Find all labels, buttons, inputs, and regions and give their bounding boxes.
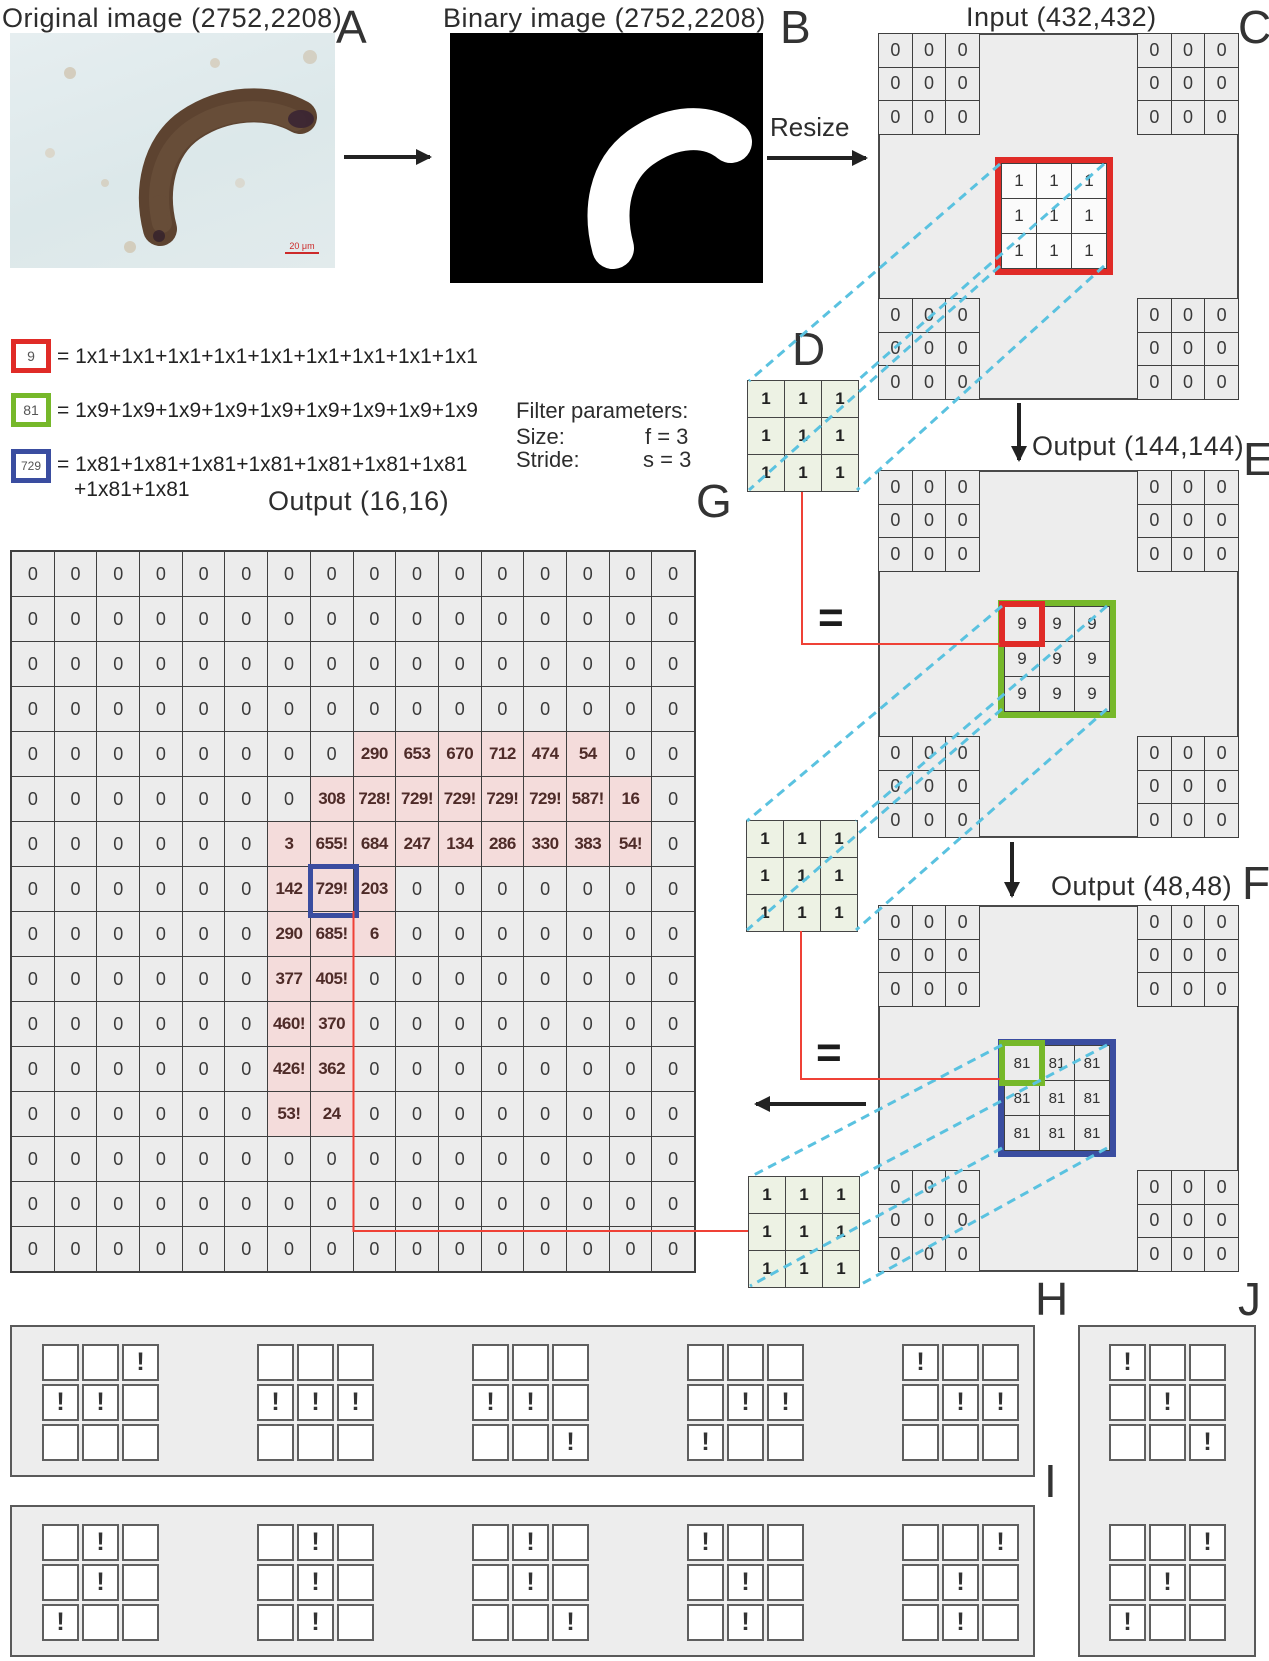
output-grid-cell: 0 bbox=[183, 597, 225, 641]
grid-cell: 0 bbox=[913, 538, 946, 571]
output-grid-cell: 0 bbox=[652, 957, 694, 1001]
output-grid-cell: 0 bbox=[97, 777, 139, 821]
panel-i-label: I bbox=[1044, 1458, 1057, 1504]
grid-cell: 1 bbox=[822, 455, 858, 491]
grid-cell: 0 bbox=[879, 333, 912, 366]
grid-cell: 0 bbox=[913, 101, 946, 134]
grid-cell: 1 bbox=[1037, 234, 1071, 268]
output-grid-cell: 405! bbox=[311, 957, 353, 1001]
grid-cell: 81 bbox=[1040, 1046, 1074, 1080]
pattern-cell bbox=[42, 1524, 79, 1561]
pattern-cell bbox=[767, 1344, 804, 1381]
zero-block: 000000000 bbox=[878, 33, 980, 135]
output-grid-cell: 0 bbox=[567, 867, 609, 911]
grid-cell: 81 bbox=[1075, 1046, 1109, 1080]
output-grid-cell: 134 bbox=[439, 822, 481, 866]
pattern-cell bbox=[297, 1424, 334, 1461]
output-grid-cell: 0 bbox=[225, 822, 267, 866]
pattern-cell: ! bbox=[82, 1564, 119, 1601]
output-grid-cell: 377 bbox=[268, 957, 310, 1001]
output-grid-cell: 0 bbox=[396, 687, 438, 731]
output-grid-cell: 653 bbox=[396, 732, 438, 776]
output-grid-cell: 0 bbox=[652, 822, 694, 866]
grid-cell: 0 bbox=[879, 366, 912, 399]
equals-sign-e: = bbox=[818, 596, 844, 640]
output-grid-cell: 0 bbox=[311, 552, 353, 596]
output-grid-cell: 0 bbox=[97, 1227, 139, 1271]
grid-cell: 0 bbox=[1172, 299, 1205, 332]
output-grid-cell: 0 bbox=[12, 687, 54, 731]
output-grid-cell: 0 bbox=[225, 1092, 267, 1136]
output-grid-cell: 0 bbox=[567, 1137, 609, 1181]
pattern-cell: ! bbox=[297, 1604, 334, 1641]
grid-cell: 0 bbox=[946, 804, 979, 837]
pattern-cell bbox=[982, 1564, 1019, 1601]
grid-cell: 0 bbox=[1172, 333, 1205, 366]
output-grid-cell: 0 bbox=[524, 687, 566, 731]
output-grid-cell: 0 bbox=[12, 1002, 54, 1046]
output-grid-cell: 0 bbox=[12, 597, 54, 641]
output-grid-cell: 0 bbox=[439, 1137, 481, 1181]
grid-cell: 0 bbox=[913, 1171, 946, 1204]
grid-cell: 0 bbox=[946, 973, 979, 1006]
output-grid-cell: 0 bbox=[567, 1182, 609, 1226]
grid-cell: 0 bbox=[1205, 68, 1238, 101]
grid-cell: 0 bbox=[1172, 804, 1205, 837]
grid-cell: 81 bbox=[1040, 1116, 1074, 1150]
grid-cell: 0 bbox=[946, 538, 979, 571]
grid-cell: 9 bbox=[1075, 642, 1109, 676]
grid-cell: 0 bbox=[1172, 366, 1205, 399]
output-grid-cell: 0 bbox=[225, 777, 267, 821]
grid-cell: 0 bbox=[946, 471, 979, 504]
output-grid-cell: 0 bbox=[652, 687, 694, 731]
pattern-cell: ! bbox=[982, 1384, 1019, 1421]
grid-cell: 0 bbox=[879, 34, 912, 67]
grid-cell: 0 bbox=[1172, 101, 1205, 134]
grid-cell: 1 bbox=[785, 381, 821, 417]
legend-box-729: 729 bbox=[11, 449, 51, 483]
output-grid-cell: 0 bbox=[55, 777, 97, 821]
output-grid-cell: 0 bbox=[140, 597, 182, 641]
output-grid-cell: 0 bbox=[610, 732, 652, 776]
filter-pattern-grid: !!! bbox=[902, 1344, 1019, 1461]
output-grid-cell: 24 bbox=[311, 1092, 353, 1136]
output-grid-cell: 0 bbox=[97, 552, 139, 596]
grid-cell: 0 bbox=[1138, 906, 1171, 939]
output-grid-cell: 142 bbox=[268, 867, 310, 911]
grid-cell: 0 bbox=[879, 804, 912, 837]
output-grid-cell: 247 bbox=[396, 822, 438, 866]
output-grid-cell: 0 bbox=[567, 957, 609, 1001]
grid-cell: 0 bbox=[1138, 333, 1171, 366]
filter-pattern-grid: !!! bbox=[902, 1524, 1019, 1641]
output-grid-cell: 0 bbox=[55, 957, 97, 1001]
filter-pattern-grid: !!! bbox=[1109, 1344, 1226, 1461]
resize-label: Resize bbox=[770, 112, 849, 143]
grid-cell: 0 bbox=[946, 68, 979, 101]
output-grid-cell: 0 bbox=[652, 1227, 694, 1271]
pattern-cell bbox=[1109, 1424, 1146, 1461]
output-grid-cell: 0 bbox=[225, 642, 267, 686]
panel-f-title: Output (48,48) bbox=[1051, 871, 1232, 902]
output-grid-cell: 0 bbox=[225, 552, 267, 596]
output-grid-cell: 0 bbox=[524, 1002, 566, 1046]
pattern-cell bbox=[942, 1344, 979, 1381]
panel-c-title: Input (432,432) bbox=[966, 2, 1157, 33]
output-grid-cell: 0 bbox=[652, 1137, 694, 1181]
output-grid-cell: 0 bbox=[524, 552, 566, 596]
output-grid-cell: 0 bbox=[482, 1137, 524, 1181]
pattern-cell bbox=[122, 1424, 159, 1461]
pattern-cell: ! bbox=[687, 1524, 724, 1561]
binary-image bbox=[450, 33, 763, 283]
zero-block: 000000000 bbox=[878, 905, 980, 1007]
output-grid-cell: 0 bbox=[311, 687, 353, 731]
grid-cell: 0 bbox=[879, 471, 912, 504]
output-grid-cell: 685! bbox=[311, 912, 353, 956]
grid-cell: 0 bbox=[1138, 68, 1171, 101]
grid-cell: 1 bbox=[1037, 164, 1071, 198]
output-grid-cell: 0 bbox=[97, 1182, 139, 1226]
grid-cell: 0 bbox=[1138, 505, 1171, 538]
output-grid-cell: 0 bbox=[439, 597, 481, 641]
output-grid-cell: 0 bbox=[55, 732, 97, 776]
grid-cell: 0 bbox=[946, 771, 979, 804]
output-grid-cell: 0 bbox=[567, 1047, 609, 1091]
pattern-cell: ! bbox=[1149, 1384, 1186, 1421]
grid-cell: 1 bbox=[786, 1177, 822, 1213]
grid-cell: 0 bbox=[1138, 366, 1171, 399]
output-grid-cell: 0 bbox=[396, 1047, 438, 1091]
output-grid-cell: 0 bbox=[524, 1227, 566, 1271]
output-grid-cell: 0 bbox=[97, 1137, 139, 1181]
grid-cell: 1 bbox=[784, 858, 820, 894]
pattern-cell: ! bbox=[82, 1384, 119, 1421]
output-grid-cell: 0 bbox=[439, 1047, 481, 1091]
legend-equation-729-line2: +1x81+1x81 bbox=[74, 478, 190, 502]
output-grid-cell: 0 bbox=[183, 1092, 225, 1136]
grid-cell: 0 bbox=[913, 973, 946, 1006]
pattern-cell: ! bbox=[1189, 1424, 1226, 1461]
grid-cell: 0 bbox=[913, 804, 946, 837]
grid-cell: 0 bbox=[913, 771, 946, 804]
output-grid-cell: 729! bbox=[524, 777, 566, 821]
output-grid-cell: 0 bbox=[55, 1047, 97, 1091]
pattern-cell bbox=[257, 1604, 294, 1641]
output-grid-cell: 54! bbox=[610, 822, 652, 866]
output-grid-cell: 0 bbox=[610, 957, 652, 1001]
output-grid-cell: 0 bbox=[12, 1227, 54, 1271]
output-grid-cell: 0 bbox=[183, 957, 225, 1001]
output-grid-cell: 0 bbox=[140, 1002, 182, 1046]
grid-cell: 0 bbox=[1205, 940, 1238, 973]
pattern-cell bbox=[337, 1564, 374, 1601]
output-grid-cell: 0 bbox=[610, 642, 652, 686]
pattern-cell: ! bbox=[1109, 1344, 1146, 1381]
output-grid-cell: 0 bbox=[183, 732, 225, 776]
output-grid-cell: 0 bbox=[12, 777, 54, 821]
grid-cell: 0 bbox=[1205, 101, 1238, 134]
pattern-cell: ! bbox=[82, 1524, 119, 1561]
grid-cell: 9 bbox=[1040, 642, 1074, 676]
output-grid-cell: 0 bbox=[268, 687, 310, 731]
grid-cell: 0 bbox=[1205, 538, 1238, 571]
output-grid-cell: 0 bbox=[97, 957, 139, 1001]
filter-pattern-grid: !!! bbox=[472, 1524, 589, 1641]
output-grid-cell: 0 bbox=[610, 1002, 652, 1046]
pattern-cell bbox=[122, 1604, 159, 1641]
output-grid-cell: 0 bbox=[652, 912, 694, 956]
panel-e-label: E bbox=[1243, 436, 1269, 482]
output-grid-cell: 0 bbox=[140, 867, 182, 911]
output-grid-cell: 0 bbox=[652, 867, 694, 911]
grid-cell: 0 bbox=[1138, 737, 1171, 770]
output-grid-cell: 0 bbox=[97, 597, 139, 641]
output-grid-cell: 0 bbox=[610, 1092, 652, 1136]
output-grid-cell: 0 bbox=[97, 1047, 139, 1091]
output-grid-cell: 729! bbox=[396, 777, 438, 821]
zero-block: 000000000 bbox=[878, 298, 980, 400]
grid-cell: 0 bbox=[1138, 973, 1171, 1006]
output-grid-cell: 203 bbox=[354, 867, 396, 911]
scale-bar: 20 μm bbox=[285, 242, 319, 254]
panel-g-label: G bbox=[696, 478, 732, 524]
output-grid-cell: 0 bbox=[610, 1227, 652, 1271]
filter-grid-d: 111111111 bbox=[747, 380, 859, 492]
output-grid-cell: 0 bbox=[567, 642, 609, 686]
grid-cell: 0 bbox=[1172, 505, 1205, 538]
zero-block: 000000000 bbox=[1137, 736, 1239, 838]
output-grid-cell: 0 bbox=[225, 1227, 267, 1271]
pattern-cell bbox=[982, 1424, 1019, 1461]
grid-cell: 1 bbox=[821, 821, 857, 857]
grid-cell: 0 bbox=[1138, 1205, 1171, 1238]
pattern-cell bbox=[472, 1424, 509, 1461]
output-grid-cell: 0 bbox=[439, 642, 481, 686]
filter-pattern-grid: !!! bbox=[257, 1524, 374, 1641]
output-grid-cell: 0 bbox=[140, 1092, 182, 1136]
output-grid-cell: 460! bbox=[268, 1002, 310, 1046]
output-grid-cell: 587! bbox=[567, 777, 609, 821]
output-grid-cell: 0 bbox=[610, 1182, 652, 1226]
output-grid-cell: 0 bbox=[354, 1047, 396, 1091]
grid-cell: 0 bbox=[913, 1238, 946, 1271]
output-grid-cell: 0 bbox=[12, 1092, 54, 1136]
pattern-cell: ! bbox=[257, 1384, 294, 1421]
grid-cell: 0 bbox=[879, 299, 912, 332]
panel-j-label: J bbox=[1238, 1276, 1261, 1322]
grid-cell: 0 bbox=[1172, 471, 1205, 504]
grid-cell: 1 bbox=[823, 1177, 859, 1213]
grid-cell: 0 bbox=[946, 1238, 979, 1271]
zero-block: 000000000 bbox=[1137, 905, 1239, 1007]
pattern-cell bbox=[902, 1424, 939, 1461]
grid-cell: 0 bbox=[913, 906, 946, 939]
grid-cell: 81 bbox=[1040, 1081, 1074, 1115]
grid-cell: 0 bbox=[879, 1238, 912, 1271]
grid-cell: 0 bbox=[879, 940, 912, 973]
pattern-cell bbox=[1109, 1564, 1146, 1601]
filter-d-label: D bbox=[792, 326, 825, 372]
grid-cell: 0 bbox=[879, 737, 912, 770]
panel-b-label: B bbox=[780, 4, 811, 50]
output-grid-cell: 0 bbox=[140, 1137, 182, 1181]
pattern-cell bbox=[552, 1524, 589, 1561]
output-grid-cell: 0 bbox=[439, 957, 481, 1001]
grid-cell: 1 bbox=[1037, 199, 1071, 233]
output-grid-cell: 0 bbox=[354, 552, 396, 596]
output-grid-cell: 0 bbox=[610, 1047, 652, 1091]
output-grid-cell: 0 bbox=[354, 1182, 396, 1226]
pattern-cell bbox=[42, 1424, 79, 1461]
microscopy-specimen-drawing bbox=[10, 33, 335, 268]
grid-cell: 0 bbox=[946, 1205, 979, 1238]
grid-cell: 0 bbox=[946, 505, 979, 538]
grid-cell: 0 bbox=[913, 471, 946, 504]
output-grid-cell: 0 bbox=[567, 1227, 609, 1271]
grid-cell: 0 bbox=[879, 1171, 912, 1204]
panel-g-title: Output (16,16) bbox=[268, 486, 449, 517]
output-grid-cell: 0 bbox=[524, 642, 566, 686]
pattern-cell: ! bbox=[512, 1564, 549, 1601]
output-grid-cell: 0 bbox=[12, 1047, 54, 1091]
zero-block: 000000000 bbox=[878, 470, 980, 572]
grid-cell: 9 bbox=[1005, 677, 1039, 711]
grid-cell: 1 bbox=[748, 455, 784, 491]
grid-cell: 1 bbox=[1002, 199, 1036, 233]
grid-cell: 0 bbox=[946, 299, 979, 332]
filter-grid-3: 111111111 bbox=[748, 1176, 860, 1288]
output-grid-cell: 0 bbox=[183, 912, 225, 956]
output-grid-cell: 0 bbox=[55, 1002, 97, 1046]
output-grid-cell: 0 bbox=[396, 1002, 438, 1046]
output-grid-cell: 290 bbox=[354, 732, 396, 776]
pattern-cell bbox=[42, 1344, 79, 1381]
output-grid-cell: 6 bbox=[354, 912, 396, 956]
output-grid-cell: 0 bbox=[311, 642, 353, 686]
output-grid-cell: 0 bbox=[567, 1002, 609, 1046]
grid-cell: 0 bbox=[1205, 771, 1238, 804]
output-grid-cell: 0 bbox=[183, 1002, 225, 1046]
pattern-cell bbox=[1189, 1344, 1226, 1381]
output-grid-cell: 0 bbox=[439, 687, 481, 731]
grid-cell: 0 bbox=[913, 737, 946, 770]
pattern-cell: ! bbox=[727, 1604, 764, 1641]
legend-equation-729: = 1x81+1x81+1x81+1x81+1x81+1x81+1x81 bbox=[57, 453, 467, 477]
output-grid-cell: 0 bbox=[140, 777, 182, 821]
output-grid-cell: 362 bbox=[311, 1047, 353, 1091]
output-grid-cell: 0 bbox=[140, 687, 182, 731]
output-grid-cell: 0 bbox=[225, 912, 267, 956]
output-48-panel: 000000000 000000000 000000000 000000000 … bbox=[878, 905, 1239, 1272]
output-grid-cell: 0 bbox=[225, 597, 267, 641]
pattern-cell bbox=[297, 1344, 334, 1381]
pattern-cell: ! bbox=[942, 1564, 979, 1601]
grid-cell: 1 bbox=[784, 821, 820, 857]
grid-cell: 0 bbox=[1138, 804, 1171, 837]
output-144-center-block: 999999999 bbox=[1004, 606, 1110, 712]
grid-cell: 0 bbox=[1172, 538, 1205, 571]
grid-cell: 1 bbox=[749, 1177, 785, 1213]
pattern-box-h: !!! !!! !!! !!! !!! bbox=[10, 1325, 1035, 1477]
output-grid-cell: 0 bbox=[225, 1182, 267, 1226]
output-grid-cell: 0 bbox=[396, 1182, 438, 1226]
grid-cell: 0 bbox=[1205, 737, 1238, 770]
grid-cell: 0 bbox=[1172, 1238, 1205, 1271]
output-grid-cell: 0 bbox=[97, 822, 139, 866]
pattern-cell: ! bbox=[942, 1604, 979, 1641]
output-grid-cell: 0 bbox=[482, 1002, 524, 1046]
output-grid-cell: 308 bbox=[311, 777, 353, 821]
pattern-cell bbox=[42, 1564, 79, 1601]
legend-box-9: 9 bbox=[11, 339, 51, 373]
output-grid-cell: 0 bbox=[268, 777, 310, 821]
output-grid-cell: 0 bbox=[524, 867, 566, 911]
output-grid-cell: 0 bbox=[97, 687, 139, 731]
output-grid-cell: 0 bbox=[610, 867, 652, 911]
output-grid-cell: 0 bbox=[140, 912, 182, 956]
pattern-cell bbox=[767, 1524, 804, 1561]
pattern-cell: ! bbox=[472, 1384, 509, 1421]
grid-cell: 1 bbox=[784, 895, 820, 931]
grid-cell: 9 bbox=[1040, 677, 1074, 711]
grid-cell: 0 bbox=[946, 101, 979, 134]
output-grid-cell: 0 bbox=[439, 1227, 481, 1271]
output-grid-cell: 0 bbox=[55, 642, 97, 686]
output-grid-cell: 684 bbox=[354, 822, 396, 866]
output-grid-cell: 0 bbox=[183, 642, 225, 686]
output-grid-cell: 0 bbox=[183, 552, 225, 596]
filter-stride-value: s = 3 bbox=[643, 447, 691, 473]
output-grid-cell: 0 bbox=[140, 642, 182, 686]
equals-sign-f: = bbox=[816, 1031, 842, 1075]
output-grid-cell: 0 bbox=[482, 1182, 524, 1226]
grid-cell: 81 bbox=[1075, 1081, 1109, 1115]
pattern-cell bbox=[902, 1384, 939, 1421]
pattern-cell bbox=[337, 1424, 374, 1461]
output-grid-cell: 0 bbox=[482, 957, 524, 1001]
grid-cell: 0 bbox=[879, 505, 912, 538]
output-grid-cell: 0 bbox=[610, 1137, 652, 1181]
grid-cell: 0 bbox=[913, 366, 946, 399]
pattern-cell bbox=[337, 1524, 374, 1561]
pattern-cell bbox=[122, 1564, 159, 1601]
pattern-cell bbox=[902, 1604, 939, 1641]
grid-cell: 0 bbox=[913, 333, 946, 366]
output-grid-cell: 0 bbox=[482, 1227, 524, 1271]
pattern-cell bbox=[942, 1424, 979, 1461]
output-grid-cell: 0 bbox=[225, 732, 267, 776]
pattern-cell bbox=[687, 1384, 724, 1421]
pattern-cell: ! bbox=[902, 1344, 939, 1381]
output-grid-cell: 0 bbox=[183, 777, 225, 821]
output-grid-cell: 0 bbox=[439, 1182, 481, 1226]
pattern-cell: ! bbox=[512, 1384, 549, 1421]
grid-cell: 0 bbox=[1205, 333, 1238, 366]
pattern-cell bbox=[727, 1524, 764, 1561]
pattern-cell bbox=[1109, 1384, 1146, 1421]
pattern-cell bbox=[337, 1604, 374, 1641]
output-grid-cell: 0 bbox=[439, 1092, 481, 1136]
pattern-cell: ! bbox=[727, 1384, 764, 1421]
output-grid-cell: 3 bbox=[268, 822, 310, 866]
output-grid-cell: 0 bbox=[652, 732, 694, 776]
output-grid-cell: 0 bbox=[97, 642, 139, 686]
output-grid-cell: 0 bbox=[354, 687, 396, 731]
filter-stride-label: Stride: bbox=[516, 447, 580, 473]
output-grid-cell: 0 bbox=[354, 1227, 396, 1271]
